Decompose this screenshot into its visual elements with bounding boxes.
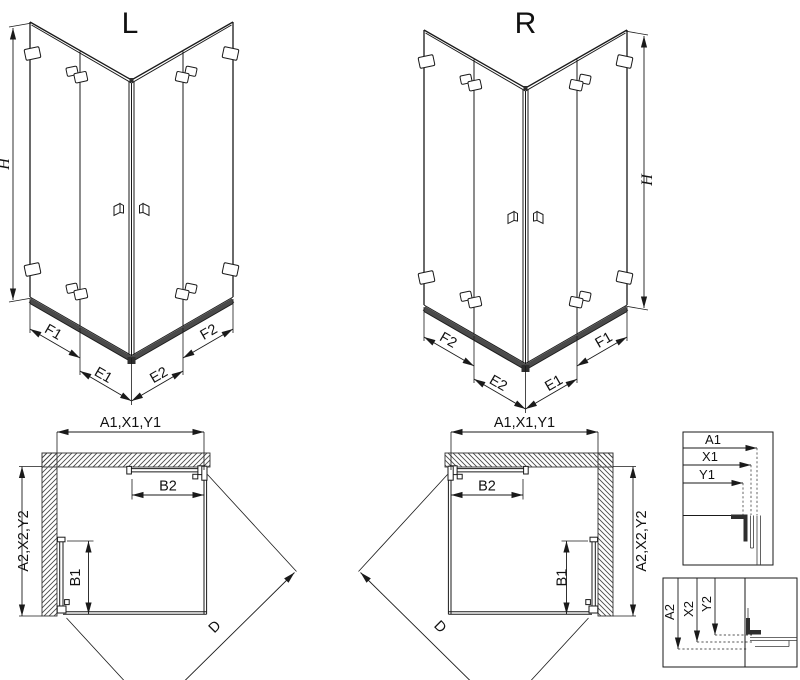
detail-label-x2: X2 (681, 601, 696, 617)
variant-title-left: L (122, 7, 139, 40)
detail-label-y2: Y2 (699, 596, 714, 612)
segment-label-e1-right: E1 (542, 372, 565, 395)
detail-box-horizontal-frame (683, 432, 773, 565)
detail-box-horizontal: A1 X1 Y1 (683, 432, 773, 565)
segment-label-f1-right: F1 (593, 329, 616, 351)
plan-diagonal-dim-label-right: D (430, 618, 449, 637)
segment-label-f1-left: F1 (42, 321, 65, 343)
detail-label-y1: Y1 (699, 467, 715, 482)
detail-box-vertical-frame (663, 578, 797, 667)
plan-door-side-dim-label-left: B1 (68, 569, 84, 587)
height-dim-label-right: H (639, 173, 656, 187)
plan-view-right: A1,X1,Y1 B2 B1 A2,X2,Y2 D (359, 415, 651, 680)
plan-top-dim-label-right: A1,X1,Y1 (494, 415, 555, 431)
segment-label-e1-left: E1 (91, 364, 114, 387)
plan-door-side-dim-label-right: B1 (555, 569, 571, 587)
detail-label-a1: A1 (705, 432, 721, 447)
iso-view-left: L H F1 E1 E2 F2 (0, 7, 239, 405)
variant-title-right: R (515, 7, 537, 40)
segment-label-e2-left: E2 (147, 364, 170, 387)
segment-label-f2-left: F2 (198, 321, 221, 343)
segment-label-f2-right: F2 (437, 329, 460, 351)
height-dim-label-left: H (0, 157, 13, 171)
plan-side-dim-label-right: A2,X2,Y2 (634, 510, 650, 571)
plan-diagonal-dim-label-left: D (206, 618, 225, 637)
plan-door-top-dim-label-right: B2 (478, 479, 496, 495)
detail-label-a2: A2 (662, 604, 677, 620)
plan-view-left: A1,X1,Y1 B2 B1 A2,X2,Y2 D (16, 415, 297, 680)
plan-top-dim-label-left: A1,X1,Y1 (100, 415, 161, 431)
plan-side-dim-label-left: A2,X2,Y2 (16, 510, 32, 571)
plan-door-top-dim-label-left: B2 (159, 479, 177, 495)
drawing-canvas: L H F1 E1 E2 F2 R H F2 E2 E1 F1 A1,X1,Y1… (0, 0, 800, 680)
detail-label-x1: X1 (702, 449, 718, 464)
shower-enclosure-technical-drawing: L H F1 E1 E2 F2 R H F2 E2 E1 F1 A1,X1,Y1… (0, 0, 800, 680)
detail-box-vertical: A2 X2 Y2 (662, 578, 797, 667)
iso-view-right: R H F2 E2 E1 F1 (418, 7, 656, 413)
segment-label-e2-right: E2 (486, 372, 509, 395)
